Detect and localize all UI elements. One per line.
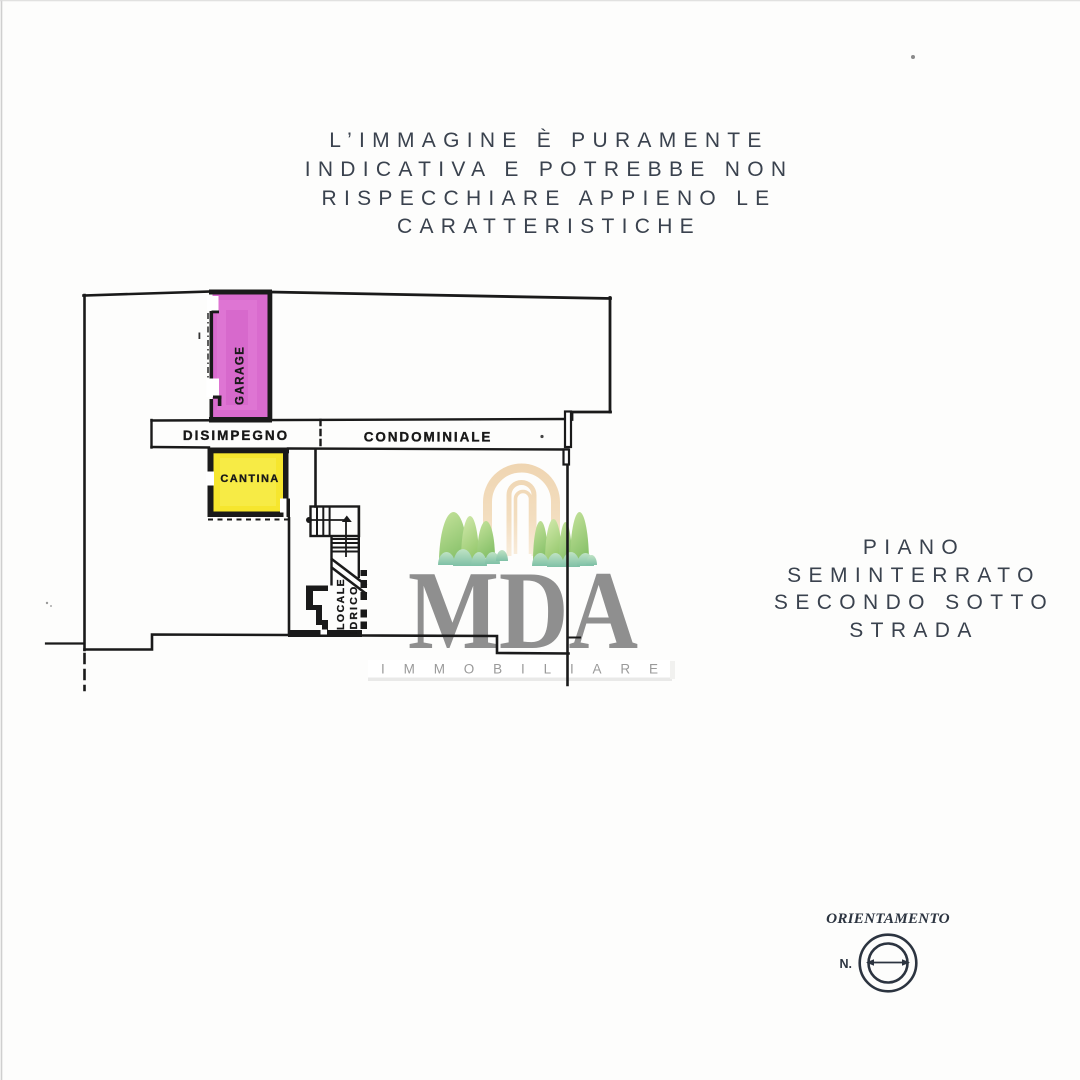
svg-text:IDRICO: IDRICO <box>348 585 360 635</box>
svg-text:DISIMPEGNO: DISIMPEGNO <box>183 428 289 443</box>
svg-text:CONDOMINIALE: CONDOMINIALE <box>364 430 493 445</box>
svg-text:GARAGE: GARAGE <box>235 346 247 405</box>
svg-text:CANTINA: CANTINA <box>220 473 279 485</box>
svg-text:N.: N. <box>840 957 853 971</box>
svg-text:LOCALE: LOCALE <box>335 578 347 630</box>
svg-text:ORIENTAMENTO: ORIENTAMENTO <box>826 910 950 927</box>
